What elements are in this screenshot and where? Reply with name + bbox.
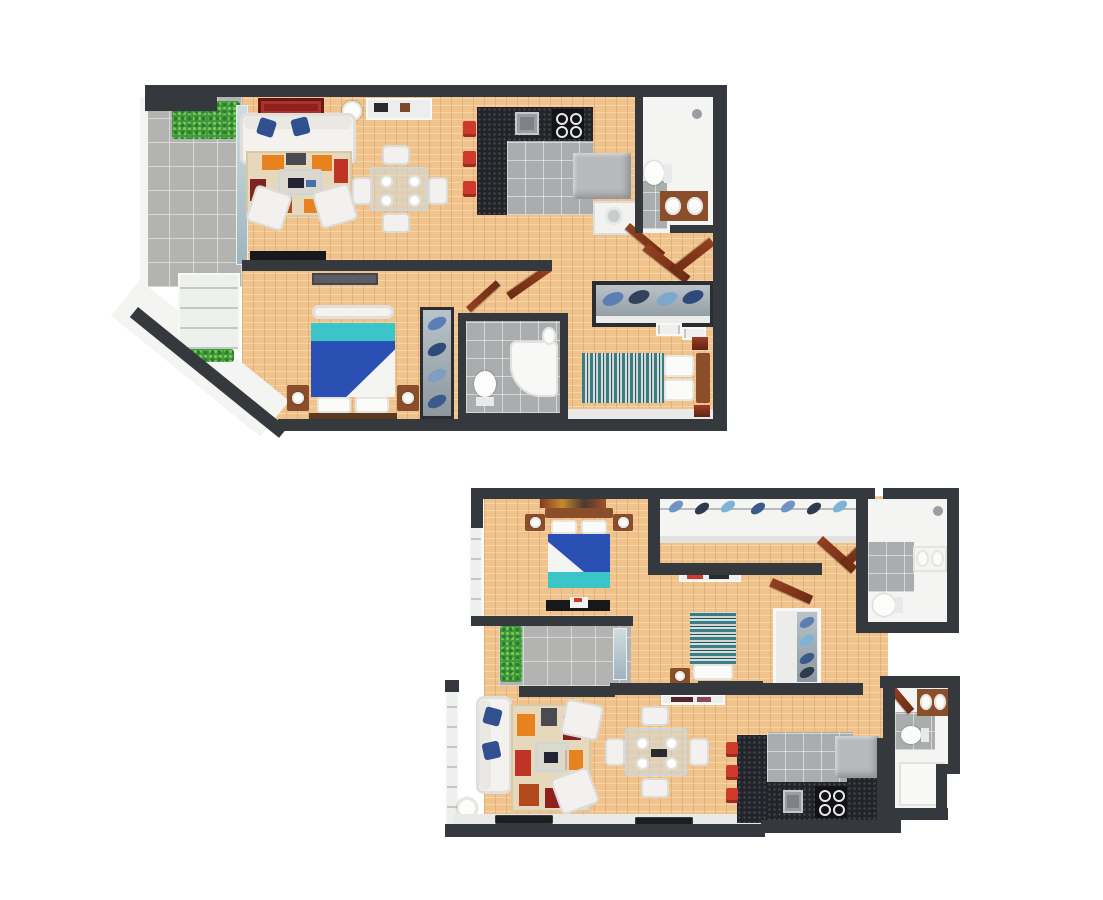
rug-patch [286, 153, 306, 165]
shelf-item [671, 697, 693, 702]
plate [665, 757, 678, 770]
glass-wardrobe [420, 307, 454, 419]
interior-wall [648, 563, 822, 575]
bed-pillow [664, 355, 694, 377]
dining-chair [382, 213, 410, 233]
magazine [306, 180, 316, 187]
kitchen-sink [515, 112, 539, 135]
lower-floor-plan [443, 480, 963, 842]
kitchen-counter [847, 776, 877, 822]
coffee-table [535, 742, 569, 772]
plate [380, 175, 393, 188]
lamp [675, 671, 685, 681]
duvet-fold [548, 542, 584, 572]
basin [687, 197, 703, 215]
magazine [288, 178, 304, 188]
wall [445, 824, 765, 837]
clothing-item [426, 340, 449, 359]
bed-pillow [581, 520, 607, 534]
plate [636, 737, 649, 750]
wall [877, 738, 890, 826]
entry-closet [592, 281, 714, 327]
balcony-parapet [140, 97, 148, 312]
bathroom-wall [947, 488, 959, 633]
basin [934, 694, 946, 710]
clothing-item [831, 498, 849, 515]
lamp [292, 392, 304, 404]
nightstand [287, 385, 309, 411]
burner [833, 790, 845, 802]
shower-head [692, 109, 702, 119]
burner [556, 126, 568, 138]
fridge [835, 736, 879, 778]
kitchen-sink [783, 790, 803, 813]
clothing-item [693, 500, 711, 517]
clothing-item [426, 314, 449, 333]
vanity [660, 191, 708, 221]
toilet [873, 594, 895, 616]
fridge [573, 153, 631, 199]
wall [445, 680, 459, 692]
bed-pillow [693, 664, 733, 680]
master-bed [311, 323, 395, 415]
console-item [374, 103, 388, 112]
bed-pillow [664, 379, 694, 401]
interior-wall [648, 488, 660, 572]
burner [833, 804, 845, 816]
foot-bench [546, 600, 610, 611]
bathroom-wall [670, 225, 713, 233]
entry-mat [495, 815, 553, 824]
balcony-plant [500, 626, 522, 682]
burner [570, 126, 582, 138]
bed-pillow [355, 397, 389, 413]
bed-teal-runner [311, 323, 395, 341]
lamp [618, 517, 629, 528]
kitchen-counter [477, 141, 507, 215]
sofa-pillow [256, 117, 277, 138]
plate [380, 194, 393, 207]
dining-table [370, 167, 428, 211]
bed-pillow [317, 397, 351, 413]
clothing-item [749, 500, 767, 517]
sink-basin [787, 795, 799, 808]
clothing-item [681, 287, 706, 306]
washer-drum [605, 207, 623, 225]
bathroom-tile [868, 542, 914, 592]
bathroom-wall [948, 676, 960, 772]
wall [278, 419, 727, 431]
bathroom-wall [635, 93, 643, 233]
clothing-item [426, 392, 449, 411]
sofa-pillow [481, 740, 501, 760]
clothing-item [667, 498, 685, 515]
foot-bench [312, 305, 394, 319]
clothing-item [805, 500, 823, 517]
bed1 [548, 518, 610, 588]
rug-patch [515, 750, 531, 776]
bath-counter [913, 546, 947, 572]
bed-duvet [548, 534, 610, 572]
rug-patch [334, 159, 348, 183]
burner [819, 804, 831, 816]
toilet [474, 371, 496, 397]
burner [556, 113, 568, 125]
plate [408, 175, 421, 188]
wall [883, 488, 959, 499]
plate [636, 757, 649, 770]
burner [570, 113, 582, 125]
bathroom-wall [856, 488, 868, 630]
toilet [644, 161, 664, 185]
toilet-tank [921, 728, 929, 742]
bed-teal-runner [548, 572, 610, 588]
toilet [901, 726, 921, 744]
nightstand [670, 668, 690, 684]
plate [408, 194, 421, 207]
rug-patch [541, 708, 557, 726]
sink-basin [520, 117, 534, 130]
bench-item [574, 598, 582, 602]
single-bed-striped [582, 353, 664, 403]
shelf-item [697, 697, 711, 702]
rug-patch [262, 155, 284, 170]
kitchen-counter [737, 735, 767, 823]
wall-tv [312, 273, 378, 285]
dining-table [625, 728, 687, 776]
master-balcony-glazing [178, 273, 240, 351]
bedroom2-window [656, 323, 682, 336]
closet-base [596, 316, 710, 323]
wall-basin [542, 327, 556, 345]
wall [145, 85, 217, 111]
basin [931, 550, 944, 567]
interior-wall [610, 683, 863, 695]
basin [916, 550, 929, 567]
wall [473, 488, 875, 499]
duvet-fold [346, 349, 395, 397]
bedroom1-windows [469, 524, 483, 622]
upper-floor-plan [130, 85, 730, 437]
clothing-item [601, 289, 626, 308]
bed-duvet [311, 341, 395, 397]
bar-stool [726, 765, 738, 780]
bathroom2 [458, 313, 568, 421]
balcony-glass-door [613, 628, 627, 680]
sofa-pillow [290, 116, 311, 137]
wall-art [692, 337, 708, 350]
wall [145, 85, 713, 97]
sofa [476, 696, 512, 794]
clothing-item [426, 366, 449, 385]
clothing-item [779, 498, 797, 515]
lamp [530, 517, 541, 528]
bar-stool [463, 181, 476, 197]
dining-chair [689, 738, 709, 766]
walk-in-closet [660, 496, 860, 536]
interior-wall [242, 260, 552, 271]
headboard [696, 353, 710, 403]
table-centerpiece [651, 749, 667, 757]
toilet-tank [476, 397, 494, 406]
nightstand [613, 514, 633, 531]
wardrobe [773, 608, 821, 686]
wall [713, 85, 727, 431]
vanity [917, 689, 949, 716]
basin [920, 694, 932, 710]
basin [665, 197, 681, 215]
clothing-item [655, 289, 680, 308]
dining-chair [382, 145, 410, 165]
bathroom-wall [856, 622, 959, 633]
single-bed-striped [690, 612, 736, 664]
bar-stool [463, 121, 476, 137]
cooktop [552, 109, 584, 139]
bar-stool [726, 742, 738, 757]
toilet-tank [895, 597, 903, 613]
magazine [544, 752, 558, 763]
armchair [560, 698, 605, 741]
rug-patch [517, 714, 535, 736]
console-item [400, 103, 410, 112]
hall-shelf [661, 694, 725, 705]
cooktop [815, 786, 847, 818]
wall [471, 488, 483, 528]
wall-art [694, 405, 710, 417]
wall [519, 686, 615, 697]
headboard [545, 508, 613, 518]
burner [819, 790, 831, 802]
nightstand [525, 514, 545, 531]
bed-pillow [551, 520, 577, 534]
lamp [402, 392, 414, 404]
tv-unit [250, 251, 326, 260]
dining-chair [352, 177, 372, 205]
dining-chair [641, 778, 669, 798]
dining-chair [605, 738, 625, 766]
bar-stool [463, 151, 476, 167]
clothing-item [627, 287, 652, 306]
dining-chair [641, 706, 669, 726]
rug-patch [519, 784, 539, 806]
floor-plan-image [0, 0, 1103, 900]
bar-stool [726, 788, 738, 803]
toilet-tank [664, 164, 672, 183]
clothing-item [719, 498, 737, 515]
wall [471, 616, 633, 626]
nightstand [397, 385, 419, 411]
dining-chair [428, 177, 448, 205]
shower-head [933, 506, 943, 516]
bathroom-wall [893, 808, 948, 820]
